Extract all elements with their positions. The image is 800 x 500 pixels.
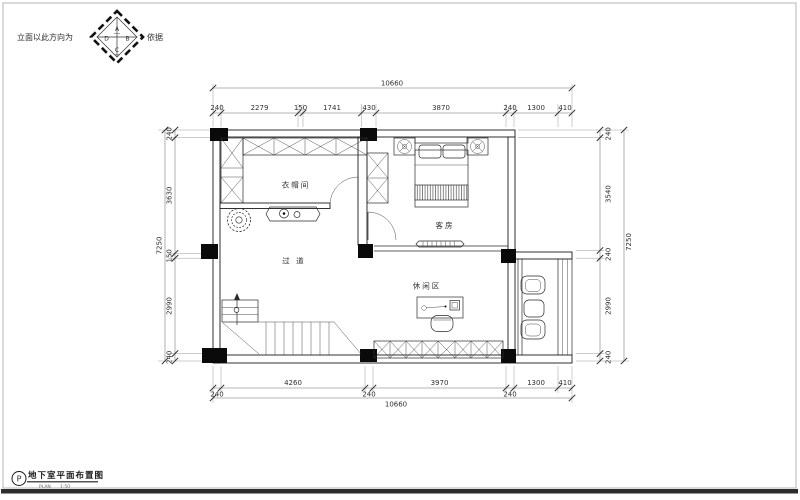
dim-top-5: 3870 — [432, 104, 450, 112]
dim-top-6: 240 — [503, 104, 516, 112]
dim-bottom-5: 1300 — [527, 379, 545, 387]
compass-sector-a: A — [115, 26, 120, 33]
dim-left-total: 7250 — [156, 237, 164, 255]
dim-top-3: 1741 — [323, 104, 341, 112]
desk — [417, 297, 463, 318]
leisure-furniture — [374, 297, 503, 358]
dim-left-2: 150 — [166, 249, 174, 262]
dim-top-4: 430 — [362, 104, 375, 112]
title-block: P 地下室平面布置图 PLAN 1:50 — [12, 470, 104, 490]
drawing-sheet: A B C D 立面以此方向为 依据 10660 240 2279 150 17… — [0, 0, 800, 500]
room-label-corridor: 过 道 — [282, 256, 305, 266]
staircase — [222, 293, 361, 355]
floor-plan-canvas: A B C D 立面以此方向为 依据 10660 240 2279 150 17… — [0, 0, 800, 500]
dim-right-total: 7250 — [625, 233, 633, 251]
dim-top-7: 1300 — [527, 104, 545, 112]
compass-left-label: 立面以此方向为 — [17, 32, 73, 42]
bed-pillow-right — [443, 145, 465, 158]
drawing-subtitle-right: 1:50 — [60, 484, 70, 490]
desk-lamp — [422, 306, 427, 311]
dim-top-0: 240 — [210, 104, 223, 112]
dim-right-4: 240 — [605, 351, 613, 364]
compass-sector-d: D — [104, 36, 109, 43]
guest-room-furniture — [394, 137, 488, 247]
dim-bottom-4: 240 — [503, 391, 516, 399]
dim-bottom-3: 3970 — [431, 379, 449, 387]
bed-headboard — [415, 137, 468, 143]
compass-right-label: 依据 — [147, 32, 163, 42]
dim-top-8: 410 — [558, 104, 571, 112]
dim-right-3: 2990 — [605, 297, 613, 315]
drawing-subtitle-left: PLAN — [39, 484, 51, 490]
console-table — [266, 207, 320, 221]
dim-right-1: 3540 — [605, 185, 613, 203]
bay-window — [558, 259, 572, 355]
bay-area — [518, 259, 572, 355]
title-badge-letter: P — [17, 475, 22, 484]
drawing-title: 地下室平面布置图 — [28, 470, 104, 481]
bed-blanket-stripes — [415, 185, 468, 200]
desk-monitor — [450, 301, 460, 311]
room-label-cloakroom: 衣帽间 — [282, 180, 311, 190]
bay-glass-partition — [518, 259, 522, 355]
dim-left-4: 240 — [166, 351, 174, 364]
corridor-furniture — [228, 207, 321, 232]
dim-left-3: 2990 — [166, 297, 174, 315]
sheet-bottom-bar — [1, 489, 798, 494]
elevation-compass: A B C D 立面以此方向为 依据 — [17, 11, 163, 63]
dim-top-total: 10660 — [381, 80, 403, 88]
stair-direction-arrow — [234, 293, 240, 325]
dim-right-0: 240 — [605, 127, 613, 140]
dim-bottom-total: 10660 — [385, 401, 407, 409]
dim-right-2: 240 — [605, 248, 613, 261]
compass-sector-c: C — [115, 47, 119, 54]
dim-bottom-2: 240 — [362, 391, 375, 399]
bed-pillow-left — [419, 145, 441, 158]
guestroom-door-swing — [368, 212, 396, 240]
dim-bottom-0: 240 — [210, 391, 223, 399]
dim-top-1: 2279 — [251, 104, 269, 112]
potted-plant — [228, 209, 251, 232]
dim-bottom-6: 410 — [558, 379, 571, 387]
sheet-border — [1, 3, 798, 494]
bay-table — [524, 300, 544, 317]
dim-bottom-1: 4260 — [284, 379, 302, 387]
room-label-guest-room: 客房 — [436, 220, 455, 230]
dim-left-0: 240 — [166, 127, 174, 140]
cloakroom-door-swing — [330, 177, 358, 205]
dim-left-1: 3630 — [166, 187, 174, 205]
compass-sector-b: B — [125, 36, 129, 43]
dim-top-2: 150 — [294, 104, 307, 112]
room-label-leisure: 休闲区 — [413, 281, 442, 291]
